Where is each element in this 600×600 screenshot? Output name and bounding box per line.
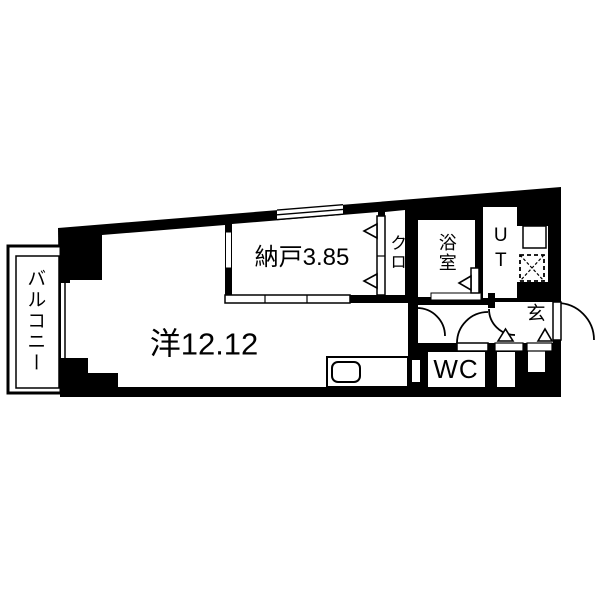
room-label-balcony: バルコニー xyxy=(24,269,45,374)
utility-cabinet xyxy=(523,226,546,248)
room-label-toilet: WC xyxy=(433,355,478,383)
kitchen-sink-icon xyxy=(332,362,360,382)
bathroom-door-panel xyxy=(471,268,479,293)
room-label-utility: UT xyxy=(490,225,511,275)
toilet-door-leaf xyxy=(457,343,488,351)
storage-wall-slot xyxy=(226,232,232,268)
entrance-door-leaf xyxy=(553,302,561,340)
hall-wall-slot xyxy=(431,293,481,300)
entrance-door-swing xyxy=(557,303,594,340)
room-label-closet: クロ xyxy=(387,234,405,272)
entrance-step-edge xyxy=(527,343,552,351)
pipe-space-niche xyxy=(497,352,515,387)
floor-plan-drawing xyxy=(0,0,600,600)
entrance-stub-wall xyxy=(488,293,495,308)
room-label-storage: 納戸3.85 xyxy=(255,245,350,271)
entrance-step-edge xyxy=(495,343,523,351)
room-label-western-room: 洋12.12 xyxy=(150,327,259,360)
washing-machine-icon xyxy=(520,255,544,281)
room-label-entrance: 玄 xyxy=(526,305,545,326)
room-label-bathroom: 浴室 xyxy=(436,233,455,273)
floor-plan: バルコニー 洋12.12 納戸3.85 クロ 浴室 UT 玄 WC xyxy=(0,0,600,600)
shoe-box-niche xyxy=(528,350,545,372)
wall-niche xyxy=(412,360,420,382)
storage-sliding-door xyxy=(225,295,350,303)
